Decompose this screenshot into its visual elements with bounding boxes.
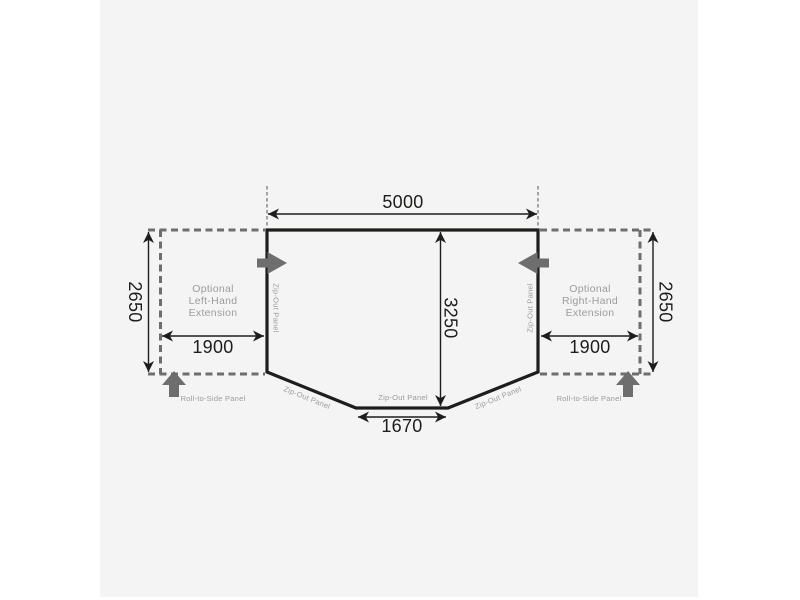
dimension-left-extension-width-value: 1900 (192, 337, 233, 357)
right-wall-zip-arrow-icon (518, 252, 549, 274)
right-extension-label-line3: Extension (566, 307, 615, 319)
dimension-right-extension-width: 1900 (541, 336, 638, 357)
right-extension-label-line1: Optional (569, 283, 611, 295)
zip-out-right-wall-label: Zip-Out Panel (526, 283, 535, 333)
left-extension-label: Optional Left-Hand Extension (189, 283, 238, 319)
right-extension-label: Optional Right-Hand Extension (562, 283, 618, 319)
dimension-left-extension-depth-value: 2650 (125, 281, 145, 322)
dimension-top-width: 5000 (267, 186, 538, 228)
dimension-front-panel-value: 1670 (381, 416, 422, 436)
right-extension-label-line2: Right-Hand (562, 295, 618, 307)
left-roll-to-side-label: Roll-to-Side Panel (181, 394, 246, 403)
left-wall-zip-arrow-icon (257, 252, 287, 274)
zip-out-front-center-label: Zip-Out Panel (378, 393, 428, 402)
dimension-right-extension-depth: 2650 (653, 232, 676, 372)
dimension-right-extension-depth-value: 2650 (656, 281, 676, 322)
dimension-left-extension-depth: 2650 (125, 232, 149, 372)
dimension-front-panel: 1670 (358, 416, 446, 436)
dimension-depth-value: 3250 (441, 297, 461, 338)
dimension-depth: 3250 (441, 232, 461, 406)
right-roll-to-side-label: Roll-to-Side Panel (557, 394, 622, 403)
zip-out-left-wall-label: Zip-Out Panel (272, 283, 281, 333)
dimension-top-width-value: 5000 (382, 192, 423, 212)
left-extension-label-line2: Left-Hand (189, 295, 238, 307)
main-awning-outline (267, 230, 538, 408)
left-extension-label-line3: Extension (189, 307, 238, 319)
dimension-left-extension-width: 1900 (162, 336, 264, 357)
left-extension-label-line1: Optional (192, 283, 234, 295)
awning-floorplan-diagram: 5000 3250 1670 1900 1900 2650 2650 Optio… (0, 0, 800, 600)
dimension-right-extension-width-value: 1900 (569, 337, 610, 357)
